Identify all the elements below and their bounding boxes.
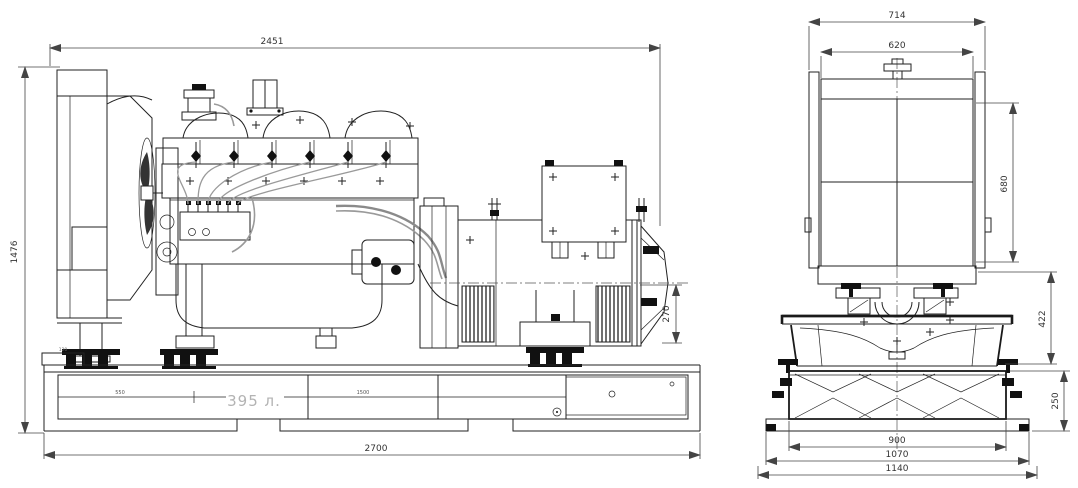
dimension-tank-width: 900 <box>789 421 1006 451</box>
dim-label-alternator-rear-height: 270 <box>662 305 672 322</box>
dimension-tank-height: 250 <box>1010 371 1070 431</box>
dim-label-tank-section-right: 1500 <box>357 390 370 396</box>
dim-label-skid-width: 1070 <box>886 450 909 460</box>
cooling-fan <box>139 138 163 248</box>
dimension-mounting-height: 422 <box>978 272 1057 364</box>
dim-label-base-step: 120 <box>59 347 68 353</box>
dim-label-overall-height: 1476 <box>10 240 20 263</box>
dimension-overall-base-width: 1140 <box>758 464 1037 479</box>
dim-label-tank-width: 900 <box>888 436 905 446</box>
dimension-base-length: 2700 <box>44 433 700 459</box>
dim-label-overall-width: 714 <box>888 11 905 21</box>
dim-label-radiator-core-width: 620 <box>888 41 905 51</box>
dim-label-overall-length: 2451 <box>261 37 284 47</box>
dimension-overall-height: 1476 <box>10 67 60 433</box>
exhaust-stack <box>247 80 283 115</box>
fuel-capacity-label: 395 л. <box>227 392 281 410</box>
radiator-side <box>57 70 152 362</box>
side-view: 550 1500 395 л. 120 2451 1476 270 2700 <box>10 37 700 459</box>
terminal-box <box>542 160 626 258</box>
dimension-radiator-core-height: 680 <box>976 103 1019 262</box>
engine <box>107 96 458 348</box>
radiator-cap <box>884 59 911 79</box>
starter-motor <box>352 240 414 284</box>
dim-label-overall-base-width: 1140 <box>886 464 909 474</box>
dim-label-tank-height: 250 <box>1051 392 1061 409</box>
skid-front <box>778 316 1018 373</box>
dimension-alternator-rear-height: 270 <box>640 285 682 343</box>
vibration-isolators <box>62 264 590 369</box>
dim-label-mounting-height: 422 <box>1038 310 1048 327</box>
base-plate-front <box>766 419 1029 431</box>
base-fuel-tank-side: 550 1500 395 л. 120 <box>42 347 700 431</box>
dim-label-base-length: 2700 <box>365 444 388 454</box>
air-intake-turbo <box>182 84 234 126</box>
dim-label-radiator-core-height: 680 <box>1000 175 1010 192</box>
dim-label-tank-section-left: 550 <box>115 390 125 396</box>
technical-drawing-page: 550 1500 395 л. 120 2451 1476 270 2700 <box>0 0 1078 488</box>
generator-outline-drawing: 550 1500 395 л. 120 2451 1476 270 2700 <box>0 0 1078 488</box>
radiator-front <box>805 72 991 284</box>
front-view: 714 620 680 422 250 900 10 <box>758 11 1070 479</box>
fuel-injection-pump <box>180 201 250 240</box>
